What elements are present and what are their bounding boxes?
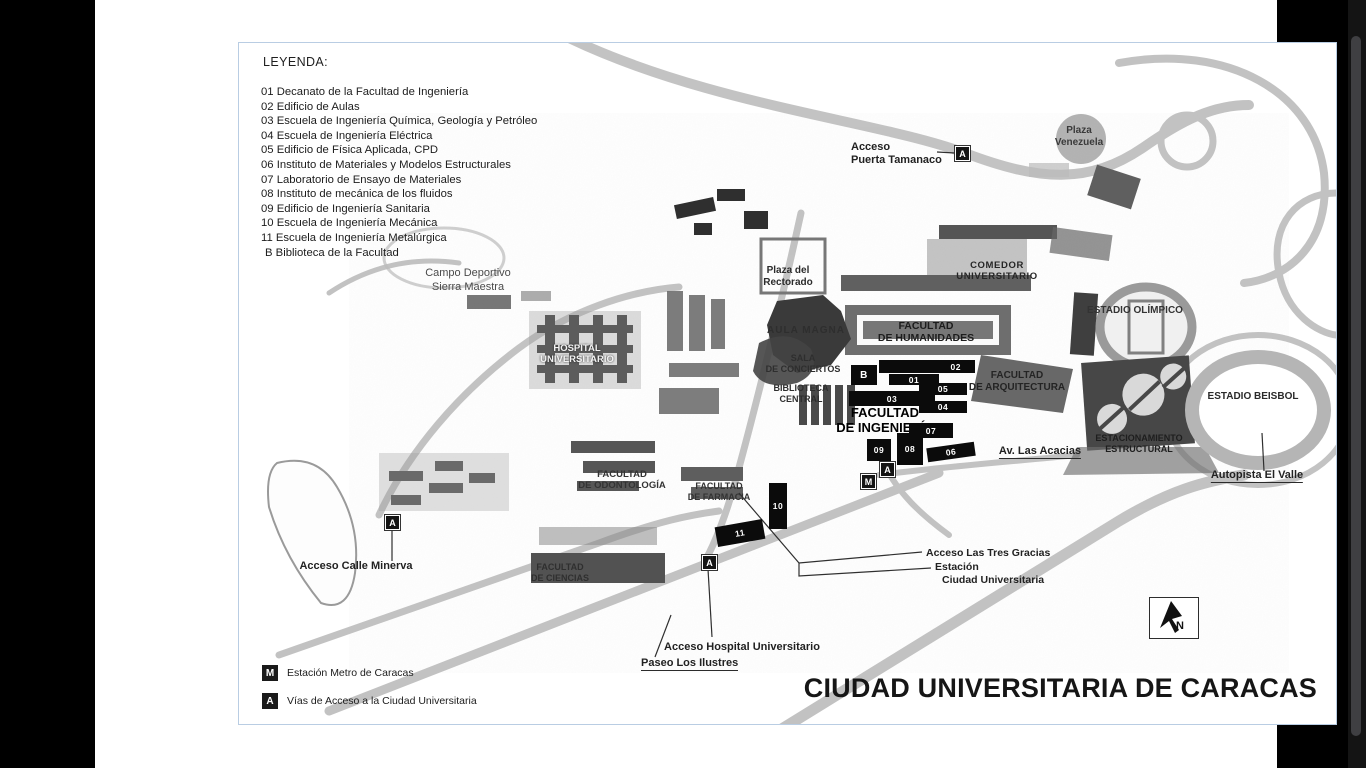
label-acceso-puerta-tamanaco: Acceso Puerta Tamanaco: [851, 141, 942, 167]
legend-item: 02 Edificio de Aulas: [261, 100, 537, 115]
label-facultad-arquitectura: FACULTAD DE ARQUITECTURA: [969, 370, 1065, 393]
label-estacion-ciudad-universitaria: Estación Ciudad Universitaria: [935, 561, 1044, 587]
legend-item: 11 Escuela de Ingeniería Metalúrgica: [261, 231, 537, 246]
label-aula-magna: AULA MAGNA: [767, 325, 845, 336]
north-arrow-box: N: [1149, 597, 1199, 639]
label-acceso-hospital-universitario: Acceso Hospital Universitario: [664, 641, 820, 653]
label-estacionamiento-estructural: ESTACIONAMIENTO ESTRUCTURAL: [1095, 433, 1182, 454]
legend-item: 07 Laboratorio de Ensayo de Materiales: [261, 173, 537, 188]
legend-list: 01 Decanato de la Facultad de Ingeniería…: [261, 85, 537, 260]
label-facultad-farmacia: FACULTAD DE FARMACIA: [688, 481, 751, 502]
label-acceso-calle-minerva: Acceso Calle Minerva: [299, 560, 412, 572]
north-arrow-icon: [1150, 598, 1196, 636]
legend-item: B Biblioteca de la Facultad: [261, 246, 537, 261]
access-marker-puerta-tamanaco: A: [955, 146, 970, 161]
map-page: LEYENDA: 01 Decanato de la Facultad de I…: [238, 42, 1337, 725]
building-B: B: [851, 365, 877, 385]
map-key-access: A Vías de Acceso a la Ciudad Universitar…: [262, 693, 477, 709]
building-08: 08: [897, 433, 923, 465]
building-10: 10: [769, 483, 787, 529]
label-estadio-olimpico: ESTADIO OLÍMPICO: [1087, 305, 1183, 316]
label-facultad-ciencias: FACULTAD DE CIENCIAS: [531, 562, 589, 583]
legend-item: 03 Escuela de Ingeniería Química, Geolog…: [261, 114, 537, 129]
map-key-metro: M Estación Metro de Caracas: [262, 665, 414, 681]
label-sala-de-conciertos: SALA DE CONCIERTOS: [766, 353, 841, 374]
scrollbar-thumb[interactable]: [1351, 36, 1361, 736]
legend-item: 10 Escuela de Ingeniería Mecánica: [261, 216, 537, 231]
north-label: N: [1176, 620, 1184, 632]
label-autopista-el-valle: Autopista El Valle: [1211, 469, 1303, 481]
access-marker-hospital: A: [702, 555, 717, 570]
legend-item: 08 Instituto de mecánica de los fluidos: [261, 187, 537, 202]
label-plaza-del-rectorado: Plaza del Rectorado: [763, 265, 812, 289]
legend-item: 01 Decanato de la Facultad de Ingeniería: [261, 85, 537, 100]
access-marker-las-tres-gracias: A: [880, 462, 895, 477]
legend-title: LEYENDA:: [263, 55, 328, 69]
building-09: 09: [867, 439, 891, 461]
access-marker-calle-minerva: A: [385, 515, 400, 530]
label-acceso-las-tres-gracias: Acceso Las Tres Gracias: [926, 547, 1050, 559]
label-comedor-universitario: COMEDOR UNIVERSITARIO: [956, 260, 1038, 282]
label-paseo-los-ilustres: Paseo Los Ilustres: [641, 657, 738, 669]
label-campo-deportivo-sierra-maestra: Campo Deportivo Sierra Maestra: [425, 267, 511, 294]
legend-item: 05 Edificio de Física Aplicada, CPD: [261, 143, 537, 158]
map-title: CIUDAD UNIVERSITARIA DE CARACAS: [804, 673, 1317, 704]
label-estadio-beisbol: ESTADIO BEISBOL: [1208, 391, 1299, 402]
label-plaza-venezuela: Plaza Venezuela: [1055, 125, 1103, 149]
legend-item: 09 Edificio de Ingeniería Sanitaria: [261, 202, 537, 217]
label-hospital-universitario: HOSPITAL UNIVERSITARIO: [540, 343, 614, 365]
metro-station-marker: M: [861, 474, 876, 489]
legend-item: 06 Instituto de Materiales y Modelos Est…: [261, 158, 537, 173]
image-viewer-canvas: LEYENDA: 01 Decanato de la Facultad de I…: [95, 0, 1277, 768]
label-biblioteca-central: BIBLIOTECA CENTRAL: [774, 383, 829, 404]
access-key-icon: A: [262, 693, 278, 709]
metro-key-icon: M: [262, 665, 278, 681]
building-04: 04: [919, 401, 967, 413]
label-facultad-humanidades: FACULTAD DE HUMANIDADES: [878, 320, 974, 344]
label-av-las-acacias: Av. Las Acacias: [999, 445, 1081, 457]
building-02: 02: [879, 360, 975, 373]
legend-item: 04 Escuela de Ingeniería Eléctrica: [261, 129, 537, 144]
label-facultad-odontologia: FACULTAD DE ODONTOLOGÍA: [578, 469, 665, 491]
